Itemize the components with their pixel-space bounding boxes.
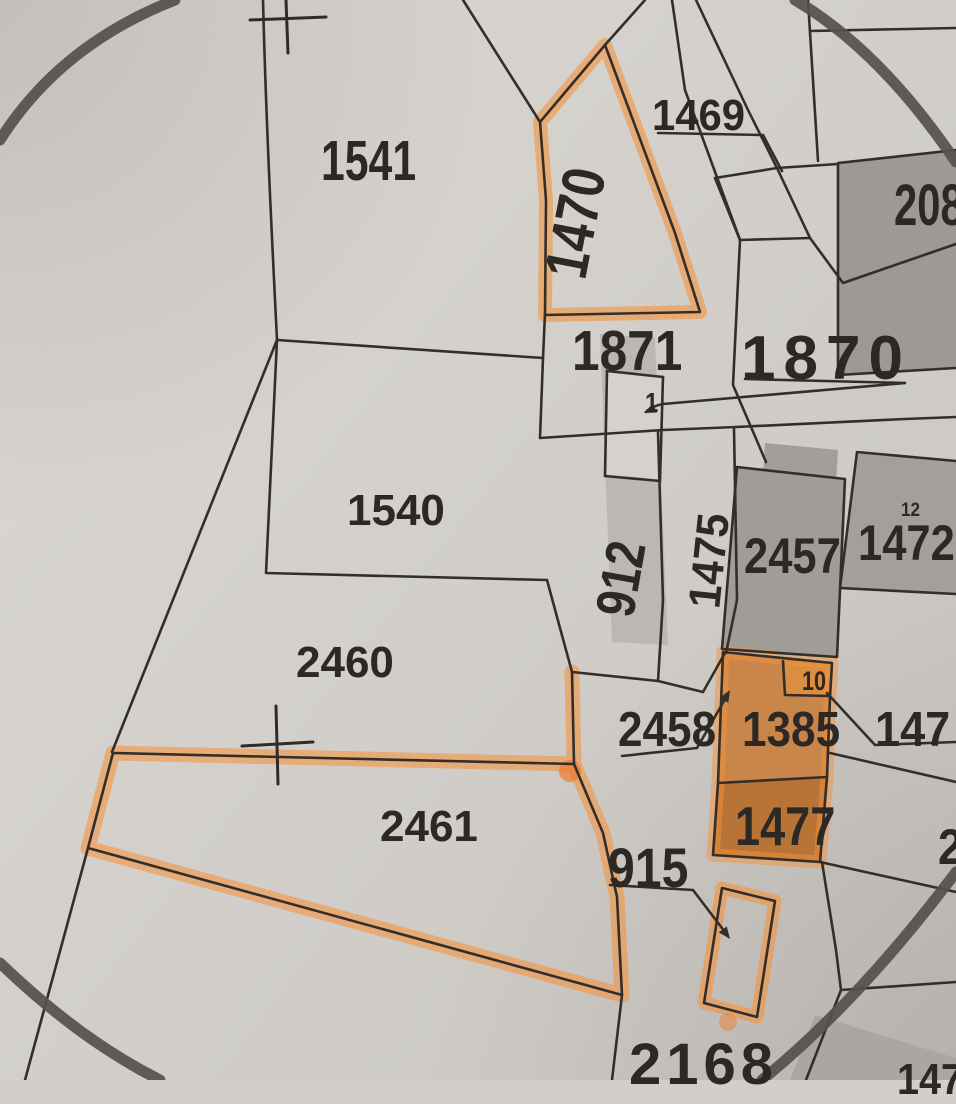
parcel-label-1477: 1477	[735, 799, 835, 854]
parcel-label-915: 915	[608, 840, 688, 896]
parcel-label-2461: 2461	[380, 805, 478, 849]
circle-arc-top-right	[795, 0, 956, 162]
parcel-label-1541: 1541	[321, 133, 416, 190]
parcel-label-912: 912	[587, 537, 654, 621]
survey-cross-top	[250, 0, 326, 53]
house-number-10: 10	[802, 668, 826, 695]
parcel-label-1469: 1469	[652, 94, 745, 138]
parcel-label-1475: 1475	[681, 511, 736, 610]
highlight-smear	[719, 1013, 737, 1031]
parcel-label-1472: 1472	[858, 518, 955, 568]
parcel-label-1871: 1871	[572, 323, 682, 380]
map-photo: 1541 1469 1470 208 1871 1870 1 1540 912 …	[0, 0, 956, 1080]
parcel-label-1870: 1870	[741, 328, 911, 390]
parcel-label-2-partial: 2	[938, 822, 956, 872]
house-number-1: 1	[645, 389, 658, 417]
parcel-label-1478-partial: 1478	[897, 1058, 956, 1102]
highlight-strip-outline	[704, 888, 775, 1017]
parcel-label-208: 208	[894, 177, 956, 235]
circle-arc-bottom-left	[0, 963, 160, 1080]
parcel-label-2460: 2460	[296, 641, 394, 685]
parcel-label-2457: 2457	[744, 531, 841, 581]
circle-arc-top-left	[0, 0, 175, 140]
parcel-label-147-partial: 147	[875, 706, 950, 755]
survey-cross-2461	[242, 706, 313, 784]
parcel-label-1540: 1540	[347, 489, 445, 533]
parcel-label-2458: 2458	[618, 706, 716, 755]
parcel-label-1385: 1385	[742, 706, 840, 755]
parcel-label-2168: 2168	[629, 1036, 778, 1094]
highlight-2461-outline	[88, 672, 622, 995]
